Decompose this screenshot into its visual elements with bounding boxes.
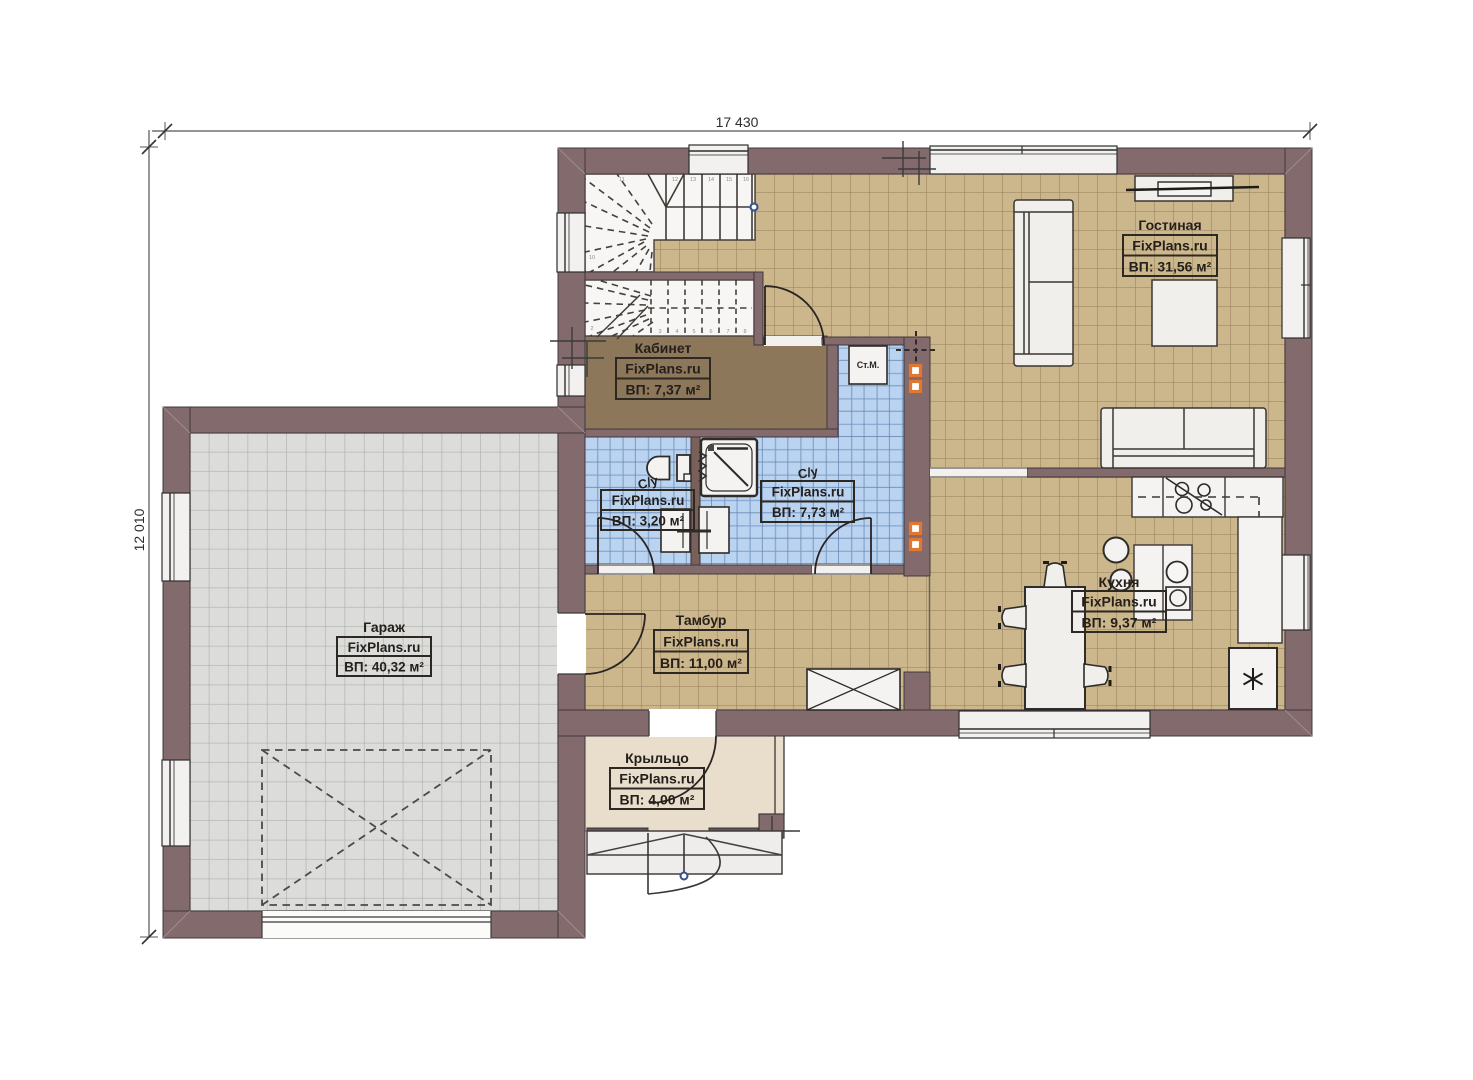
svg-text:FixPlans.ru: FixPlans.ru xyxy=(663,634,738,650)
svg-text:FixPlans.ru: FixPlans.ru xyxy=(619,771,694,787)
svg-text:15: 15 xyxy=(726,177,732,183)
svg-text:ВП: 31,56 м²: ВП: 31,56 м² xyxy=(1129,259,1212,275)
svg-text:FixPlans.ru: FixPlans.ru xyxy=(1132,238,1207,254)
svg-text:14: 14 xyxy=(708,177,714,183)
svg-text:FixPlans.ru: FixPlans.ru xyxy=(1081,594,1156,610)
svg-text:ВП: 40,32 м²: ВП: 40,32 м² xyxy=(344,660,424,675)
svg-text:8: 8 xyxy=(743,329,746,335)
svg-text:FixPlans.ru: FixPlans.ru xyxy=(772,485,845,500)
svg-text:16: 16 xyxy=(743,177,749,183)
svg-text:Гостиная: Гостиная xyxy=(1138,217,1201,233)
svg-text:10: 10 xyxy=(589,255,595,261)
svg-text:FixPlans.ru: FixPlans.ru xyxy=(612,493,685,508)
svg-text:ВП: 7,73 м²: ВП: 7,73 м² xyxy=(772,505,845,520)
svg-text:ВП: 4,00 м²: ВП: 4,00 м² xyxy=(620,792,695,808)
svg-text:4: 4 xyxy=(675,329,678,335)
svg-text:ВП: 3,20 м²: ВП: 3,20 м² xyxy=(612,514,685,529)
svg-text:6: 6 xyxy=(709,329,712,335)
svg-text:Кухня: Кухня xyxy=(1099,574,1140,590)
svg-text:5: 5 xyxy=(692,329,695,335)
svg-text:2: 2 xyxy=(590,326,593,332)
svg-text:Гараж: Гараж xyxy=(363,619,406,635)
svg-text:FixPlans.ru: FixPlans.ru xyxy=(625,361,700,377)
svg-text:FixPlans.ru: FixPlans.ru xyxy=(348,640,421,655)
svg-text:17 430: 17 430 xyxy=(716,114,759,130)
svg-text:12: 12 xyxy=(672,177,678,183)
svg-text:Тамбур: Тамбур xyxy=(676,612,727,628)
svg-text:11: 11 xyxy=(619,177,625,183)
svg-text:13: 13 xyxy=(690,177,696,183)
svg-text:ВП: 11,00 м²: ВП: 11,00 м² xyxy=(660,655,742,671)
svg-text:7: 7 xyxy=(726,329,729,335)
svg-text:3: 3 xyxy=(658,329,661,335)
svg-text:Ст.М.: Ст.М. xyxy=(857,360,880,370)
svg-text:12 010: 12 010 xyxy=(131,508,147,551)
svg-text:Кабинет: Кабинет xyxy=(635,340,692,356)
svg-text:ВП: 7,37 м²: ВП: 7,37 м² xyxy=(626,382,701,398)
svg-text:Крыльцо: Крыльцо xyxy=(625,750,689,766)
svg-text:ВП: 9,37 м²: ВП: 9,37 м² xyxy=(1082,615,1157,631)
